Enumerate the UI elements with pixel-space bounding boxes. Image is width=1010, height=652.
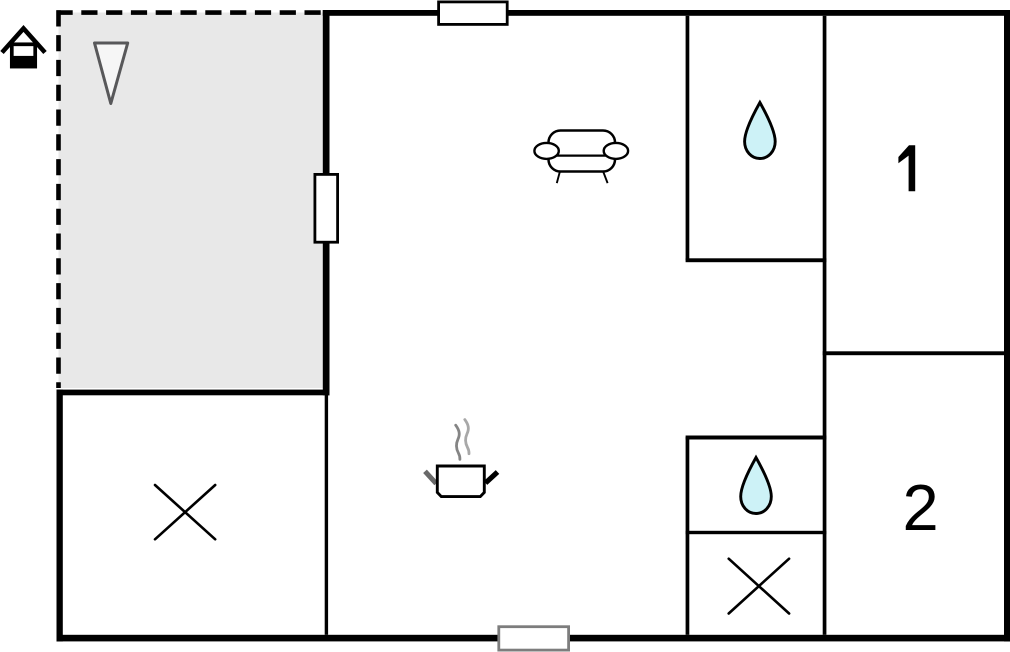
svg-text:2: 2 bbox=[903, 471, 939, 544]
